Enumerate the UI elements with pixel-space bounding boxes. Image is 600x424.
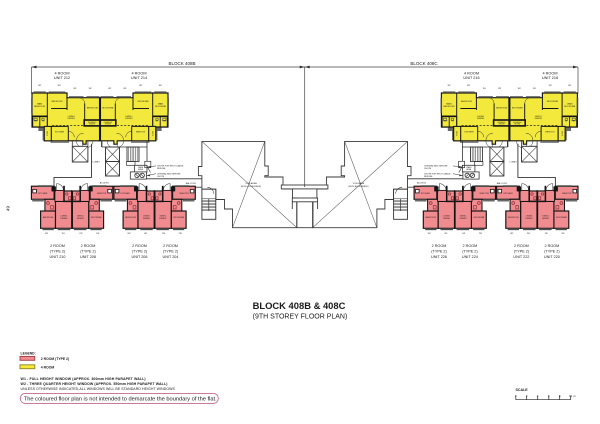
svg-text:VOID AREA: VOID AREA xyxy=(245,182,257,185)
svg-text:VOID AREA: VOID AREA xyxy=(353,182,365,185)
svg-text:2 ROOM: 2 ROOM xyxy=(545,244,560,248)
svg-text:CHUTE: CHUTE xyxy=(424,168,432,170)
svg-text:(TYPE 2): (TYPE 2) xyxy=(514,250,530,254)
svg-text:2 ROOM (TYPE 2): 2 ROOM (TYPE 2) xyxy=(41,357,69,361)
svg-text:4 ROOM: 4 ROOM xyxy=(41,366,55,370)
svg-text:(TYPE 2): (TYPE 2) xyxy=(431,250,447,254)
svg-text:(NON- ACCESSIBLE): (NON- ACCESSIBLE) xyxy=(241,185,262,188)
svg-text:2 ROOM: 2 ROOM xyxy=(463,244,478,248)
svg-text:W2 - THREE QUARTER HEIGHT WIN: W2 - THREE QUARTER HEIGHT WINDOW (APPROX… xyxy=(21,382,168,386)
svg-text:2 ROOM: 2 ROOM xyxy=(514,244,529,248)
svg-text:LEGEND:: LEGEND: xyxy=(21,351,36,355)
svg-text:10: 10 xyxy=(569,394,573,398)
svg-text:(TYPE 2): (TYPE 2) xyxy=(163,250,179,254)
svg-text:2 ROOM: 2 ROOM xyxy=(132,244,147,248)
svg-text:UNLESS OTHERWISE INDICATED,ALL: UNLESS OTHERWISE INDICATED,ALL WINDOWS W… xyxy=(21,387,176,391)
svg-text:CENTRALISED REFUSE: CENTRALISED REFUSE xyxy=(157,172,181,175)
svg-text:(TYPE 2): (TYPE 2) xyxy=(50,250,66,254)
svg-text:UNIT 218: UNIT 218 xyxy=(542,76,558,80)
svg-text:CHUTE: CHUTE xyxy=(157,176,165,178)
svg-text:UNIT 222: UNIT 222 xyxy=(513,255,529,259)
svg-text:(TYPE 2): (TYPE 2) xyxy=(132,250,148,254)
svg-text:UNIT 220: UNIT 220 xyxy=(544,255,560,259)
svg-text:(TYPE 2): (TYPE 2) xyxy=(462,250,478,254)
svg-text:BALCONY: BALCONY xyxy=(186,182,197,185)
svg-text:UNIT 206: UNIT 206 xyxy=(132,255,148,259)
svg-text:SCALE: SCALE xyxy=(516,388,529,392)
svg-text:(9TH STOREY FLOOR PLAN): (9TH STOREY FLOOR PLAN) xyxy=(253,313,348,320)
svg-text:49: 49 xyxy=(6,206,11,212)
svg-text:REFUSE: REFUSE xyxy=(157,168,166,170)
svg-text:W1 - FULL HEIGHT WINDOW (APPR: W1 - FULL HEIGHT WINDOW (APPROX. 300mm H… xyxy=(21,377,146,381)
svg-text:CHUTE FOR RECYCLABLE: CHUTE FOR RECYCLABLE xyxy=(424,172,451,175)
svg-text:UNIT 210: UNIT 210 xyxy=(50,255,66,259)
svg-text:(TYPE 2): (TYPE 2) xyxy=(80,250,96,254)
svg-text:The coloured floor plan is not: The coloured floor plan is not intended … xyxy=(24,397,217,403)
svg-text:CHUTE FOR RECYCLABLE: CHUTE FOR RECYCLABLE xyxy=(157,165,184,168)
svg-text:(NON- ACCESSIBLE): (NON- ACCESSIBLE) xyxy=(348,185,369,188)
svg-text:ACCESS: ACCESS xyxy=(417,182,427,185)
svg-text:2 ROOM: 2 ROOM xyxy=(50,244,65,248)
svg-text:BLOCK 408C: BLOCK 408C xyxy=(410,61,438,66)
svg-text:2 ROOM: 2 ROOM xyxy=(163,244,178,248)
svg-text:BLOCK 408B: BLOCK 408B xyxy=(168,61,195,66)
svg-text:CENTRALISED REFUSE: CENTRALISED REFUSE xyxy=(424,165,448,168)
svg-text:2 ROOM: 2 ROOM xyxy=(81,244,96,248)
svg-text:BLOCK 408B & 408C: BLOCK 408B & 408C xyxy=(253,300,346,311)
svg-text:UNIT 208: UNIT 208 xyxy=(80,255,96,259)
svg-text:ACCESS: ACCESS xyxy=(100,182,110,185)
svg-text:LOBBY: LOBBY xyxy=(510,161,518,163)
svg-text:LOBBY: LOBBY xyxy=(93,161,101,163)
svg-text:UNIT 204: UNIT 204 xyxy=(163,255,179,259)
svg-text:UNIT 216: UNIT 216 xyxy=(463,76,479,80)
svg-text:UNIT 214: UNIT 214 xyxy=(131,76,147,80)
svg-text:UNIT 212: UNIT 212 xyxy=(54,76,70,80)
svg-text:UNIT 224: UNIT 224 xyxy=(462,255,478,259)
svg-text:BALCONY: BALCONY xyxy=(497,182,508,185)
svg-text:2 ROOM: 2 ROOM xyxy=(432,244,447,248)
svg-text:(TYPE 2): (TYPE 2) xyxy=(544,250,560,254)
svg-text:UNIT 226: UNIT 226 xyxy=(431,255,447,259)
svg-text:REFUSE: REFUSE xyxy=(424,176,433,178)
